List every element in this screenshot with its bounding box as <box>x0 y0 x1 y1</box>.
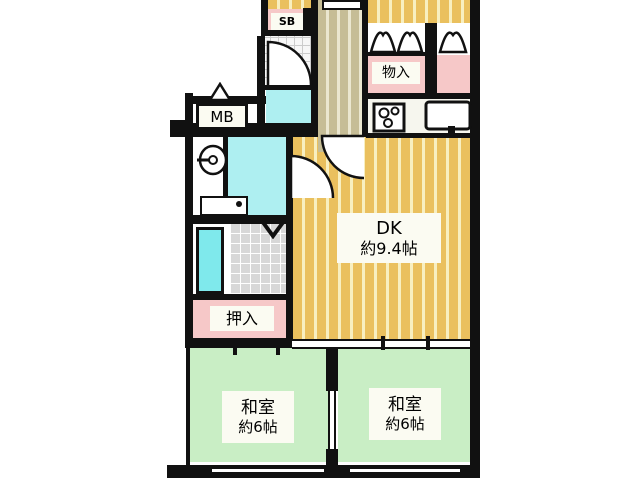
dk-label-box: DK 約9.4帖 <box>337 213 441 263</box>
sink <box>424 100 472 133</box>
mb-label: MB <box>210 108 233 126</box>
folding-closet-doors-left <box>368 24 425 54</box>
door-handle-dot <box>236 201 242 207</box>
triangle-door-marker-icon <box>208 82 232 102</box>
window-slit-left <box>212 469 324 472</box>
wall-kitchen-bottom <box>366 133 470 138</box>
sb-label: SB <box>279 15 295 28</box>
washing-machine-icon <box>195 143 229 179</box>
wall-bathroom-oshiire <box>193 294 290 300</box>
storage-label: 物入 <box>382 65 410 82</box>
oshiire-label: 押入 <box>226 309 258 328</box>
toilet-door-arc <box>264 38 314 88</box>
bathtub-icon <box>196 227 224 294</box>
wall-kitchen-top <box>368 93 470 99</box>
stove-burners-icon <box>372 102 406 133</box>
triangle-door-marker-icon <box>258 219 288 239</box>
laundry-fixture <box>195 143 229 179</box>
sb-label-box: SB <box>271 13 303 30</box>
washitsu-left-label: 和室 <box>241 398 275 418</box>
window-slit-right <box>350 469 460 472</box>
door-swing-icon <box>264 38 314 88</box>
washitsu-right-label-box: 和室 約6帖 <box>369 388 441 440</box>
folding-closet-door-icon <box>437 24 470 54</box>
stove <box>372 102 406 133</box>
dk-size: 約9.4帖 <box>360 239 417 258</box>
wall-left-window <box>186 348 190 465</box>
folding-closet-door-icon <box>368 24 425 54</box>
track-tick-1 <box>381 336 385 350</box>
washroom-dk-door-arc <box>287 152 339 202</box>
folding-closet-doors-right <box>437 24 470 54</box>
wall-corridor-right <box>362 0 368 137</box>
track-tick-3 <box>233 346 237 355</box>
corridor-floor <box>318 0 362 152</box>
washitsu-right-label: 和室 <box>388 395 422 415</box>
wall-right <box>470 0 480 478</box>
track-tick-2 <box>426 336 430 350</box>
door-swing-icon <box>287 152 339 202</box>
dk-label: DK <box>376 218 402 240</box>
mb-box: MB <box>196 103 248 130</box>
kitchen-sink-icon <box>424 100 472 133</box>
room-divider-sliding-door <box>328 391 336 449</box>
washitsu-left-label-box: 和室 約6帖 <box>222 391 294 443</box>
washitsu-right-size: 約6帖 <box>385 415 425 433</box>
washitsu-left-size: 約6帖 <box>238 418 278 436</box>
top-right-floor <box>368 0 470 23</box>
track-tick-4 <box>276 346 280 355</box>
storage-label-box: 物入 <box>372 62 420 84</box>
right-closet-floor <box>437 55 470 93</box>
entrance-door <box>322 0 362 10</box>
floor-plan: MB SB 物入 DK 約9.4帖 押入 和室 約6帖 和室 約6帖 <box>0 0 640 480</box>
bathroom-door-marker <box>258 219 288 239</box>
oshiire-label-box: 押入 <box>210 306 274 331</box>
upper-washroom-floor <box>266 90 312 123</box>
mb-triangle-marker <box>208 82 232 102</box>
wall-room-divider-bottom <box>326 449 338 466</box>
wall-closet-divider <box>425 23 437 99</box>
